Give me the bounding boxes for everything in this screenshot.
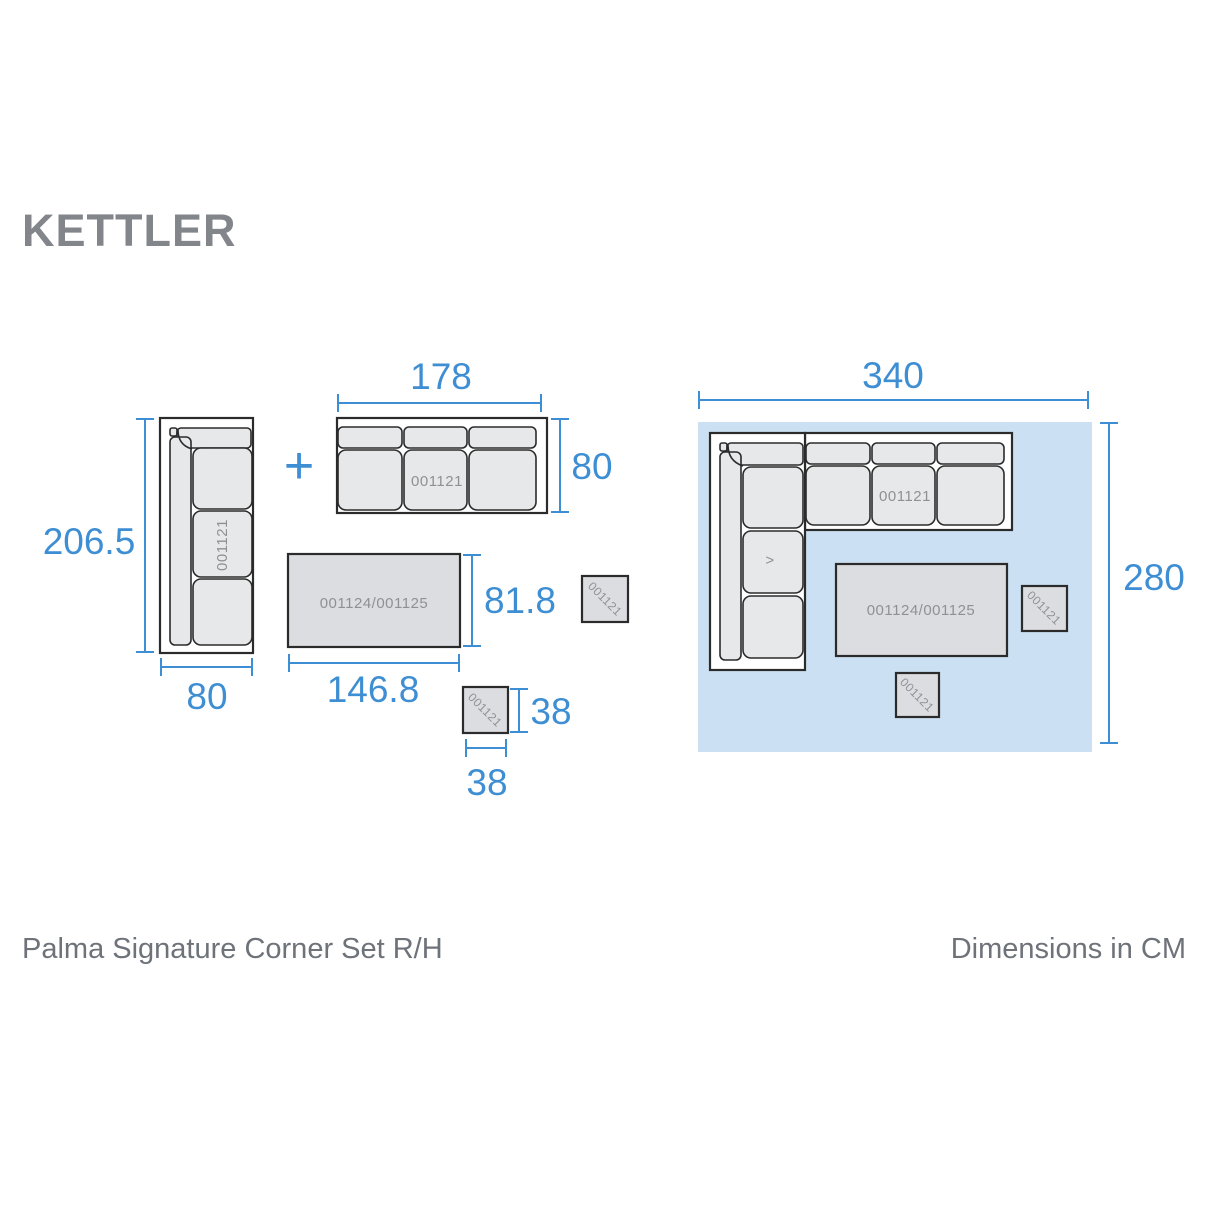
corner-sofa-seat-1 (193, 448, 252, 509)
sofa-piece: 001121 (337, 418, 547, 513)
corner-sofa-piece: 001121 (160, 418, 253, 653)
dim-sofa-depth-value: 80 (571, 446, 612, 487)
assembled-stool-bottom: 001121 (896, 673, 939, 717)
dim-set-width-value: 340 (862, 355, 924, 396)
assembled-corner-arm-strip (720, 452, 741, 660)
dim-set-depth: 280 (1100, 423, 1185, 743)
dim-stool-depth-value: 38 (530, 691, 571, 732)
dim-corner-sofa-length: 206.5 (43, 419, 154, 652)
dim-corner-sofa-depth: 80 (161, 658, 252, 717)
plus-icon: + (284, 437, 314, 495)
stool-piece: 001121 (463, 687, 508, 733)
assembled-table-id-label: 001124/001125 (867, 602, 976, 619)
corner-sofa-arm-strip (170, 437, 191, 645)
assembled-sofa-back-3 (937, 443, 1004, 464)
dim-table-width-value: 81.8 (484, 580, 556, 621)
table-piece: 001124/001125 (288, 554, 460, 647)
assembled-sofa-id-label: 001121 (879, 488, 931, 505)
assembled-sofa-back-2 (872, 443, 935, 464)
table-id-label: 001124/001125 (320, 595, 429, 612)
assembled-table: 001124/001125 (836, 564, 1007, 656)
corner-sofa-seat-3 (193, 579, 252, 645)
assembled-corner-marker: > (765, 552, 774, 569)
extra-stool-piece: 001121 (582, 576, 628, 622)
assembled-corner-pad (720, 443, 727, 451)
dim-table-length-value: 146.8 (327, 669, 420, 710)
dimension-sheet: KETTLER 001121 206.5 80 + 001121 (0, 0, 1214, 1214)
dim-stool-width-value: 38 (466, 762, 507, 803)
dim-stool-depth: 38 (510, 689, 572, 732)
sofa-back-cushion-3 (469, 427, 536, 448)
assembled-corner-seat-3 (743, 596, 803, 658)
assembled-sofa-seat-3 (937, 466, 1004, 525)
product-title: Palma Signature Corner Set R/H (22, 933, 443, 965)
dimension-diagram: KETTLER 001121 206.5 80 + 001121 (0, 0, 1214, 1214)
brand-logo: KETTLER (22, 205, 237, 256)
units-note: Dimensions in CM (951, 933, 1186, 965)
dim-corner-sofa-depth-value: 80 (186, 676, 227, 717)
dim-sofa-depth: 80 (551, 419, 613, 512)
sofa-id-label: 001121 (411, 473, 463, 490)
dim-corner-sofa-length-value: 206.5 (43, 521, 136, 562)
dim-sofa-length: 178 (338, 356, 541, 412)
assembled-stool-right: 001121 (1022, 586, 1067, 631)
corner-sofa-id-label: 001121 (214, 519, 231, 571)
dim-sofa-length-value: 178 (410, 356, 472, 397)
sofa-back-cushion-1 (338, 427, 402, 448)
sofa-seat-3 (469, 450, 536, 510)
dim-stool-width: 38 (466, 739, 508, 803)
dim-set-width: 340 (699, 355, 1088, 409)
sofa-back-cushion-2 (404, 427, 467, 448)
sofa-seat-1 (338, 450, 402, 510)
corner-sofa-corner-pad (170, 428, 177, 436)
dim-table-width: 81.8 (463, 555, 556, 646)
dim-table-length: 146.8 (289, 654, 459, 710)
dim-set-depth-value: 280 (1123, 557, 1185, 598)
assembled-sofa-back-1 (806, 443, 870, 464)
assembled-corner-seat-1 (743, 467, 803, 528)
assembled-sofa-seat-1 (806, 466, 870, 525)
